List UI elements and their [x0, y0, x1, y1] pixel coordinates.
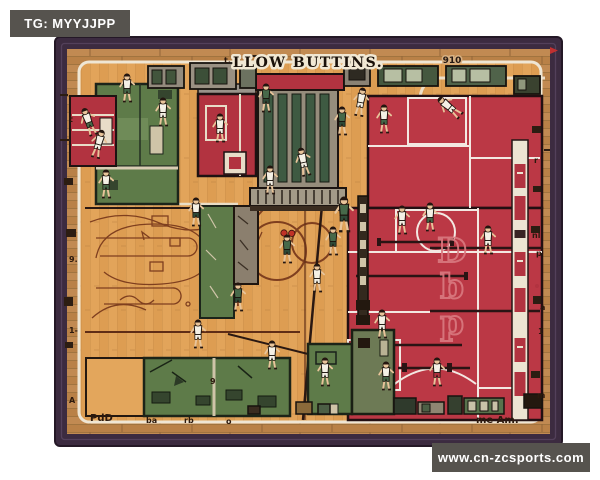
margin-glyph: PdD	[90, 413, 113, 424]
margin-glyph: t	[69, 115, 73, 124]
screenshot-stage: Dbp	[0, 0, 600, 480]
watermark-website: www.cn-zcsports.com	[432, 443, 590, 472]
margin-glyph: a	[540, 303, 545, 312]
court-letter-shapes: Dbp	[437, 231, 466, 343]
windowed-wall	[356, 196, 370, 340]
watermark-telegram: TG: MYYJJPP	[10, 10, 130, 37]
margin-glyph: o	[226, 417, 232, 426]
margin-glyph: 1-	[69, 326, 78, 335]
basketball-illustration: Dbp	[0, 0, 600, 480]
corner-number: 910	[443, 56, 462, 66]
margin-glyph: 9	[210, 377, 216, 386]
margin-glyph: 9.	[69, 255, 78, 264]
artwork-title: LLOW BUTTINS.	[233, 55, 383, 71]
margin-glyph: 1	[538, 327, 544, 336]
margin-glyph: me Am.	[476, 415, 519, 426]
margin-glyph: m	[537, 391, 545, 400]
margin-glyph: p	[536, 249, 542, 258]
margin-glyph: r	[534, 156, 538, 165]
margin-glyph: A	[69, 396, 76, 405]
margin-glyph: nl	[532, 231, 541, 240]
margin-glyph: rb	[184, 416, 194, 425]
margin-glyph: ba	[146, 416, 157, 425]
margin-glyph: t.	[224, 56, 231, 65]
